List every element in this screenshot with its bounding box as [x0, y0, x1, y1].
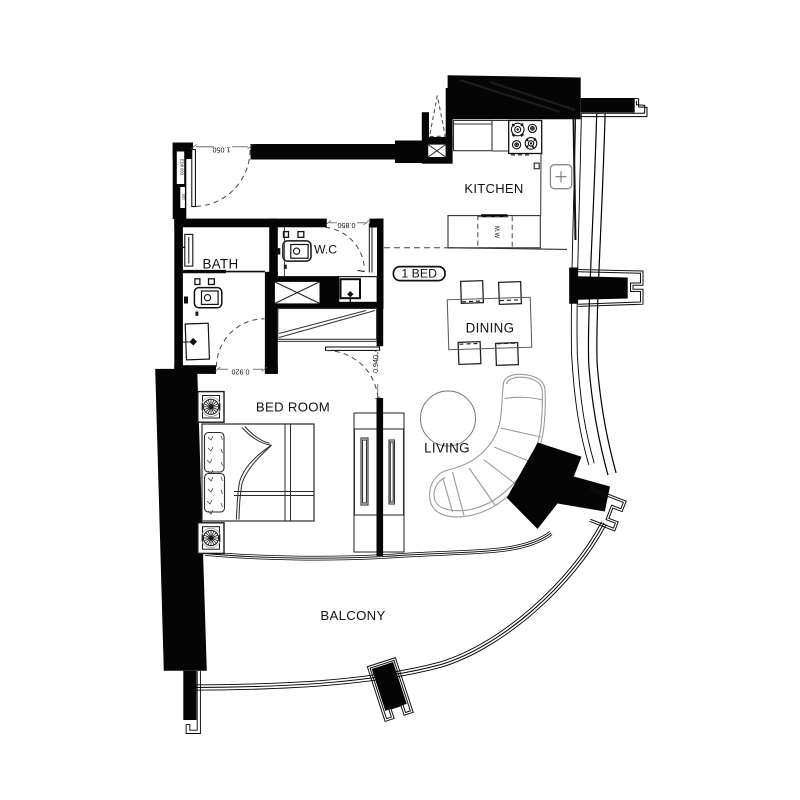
svg-text:BATH: BATH: [203, 257, 239, 272]
svg-text:BD: BD: [182, 194, 187, 200]
svg-text:M.W: M.W: [493, 226, 499, 239]
svg-text:0.940: 0.940: [371, 355, 380, 373]
svg-text:LIVING: LIVING: [424, 441, 470, 456]
svg-text:1 BED: 1 BED: [401, 267, 437, 281]
svg-text:KITCHEN: KITCHEN: [464, 181, 523, 196]
svg-text:1.050: 1.050: [213, 146, 231, 155]
svg-text:ED8 003: ED8 003: [180, 159, 185, 176]
svg-text:BED ROOM: BED ROOM: [256, 400, 330, 415]
svg-text:0.920: 0.920: [232, 367, 250, 376]
svg-text:0.850: 0.850: [338, 221, 356, 230]
svg-text:DINING: DINING: [466, 321, 515, 336]
svg-text:W.C: W.C: [314, 243, 337, 257]
svg-text:BALCONY: BALCONY: [320, 608, 385, 623]
